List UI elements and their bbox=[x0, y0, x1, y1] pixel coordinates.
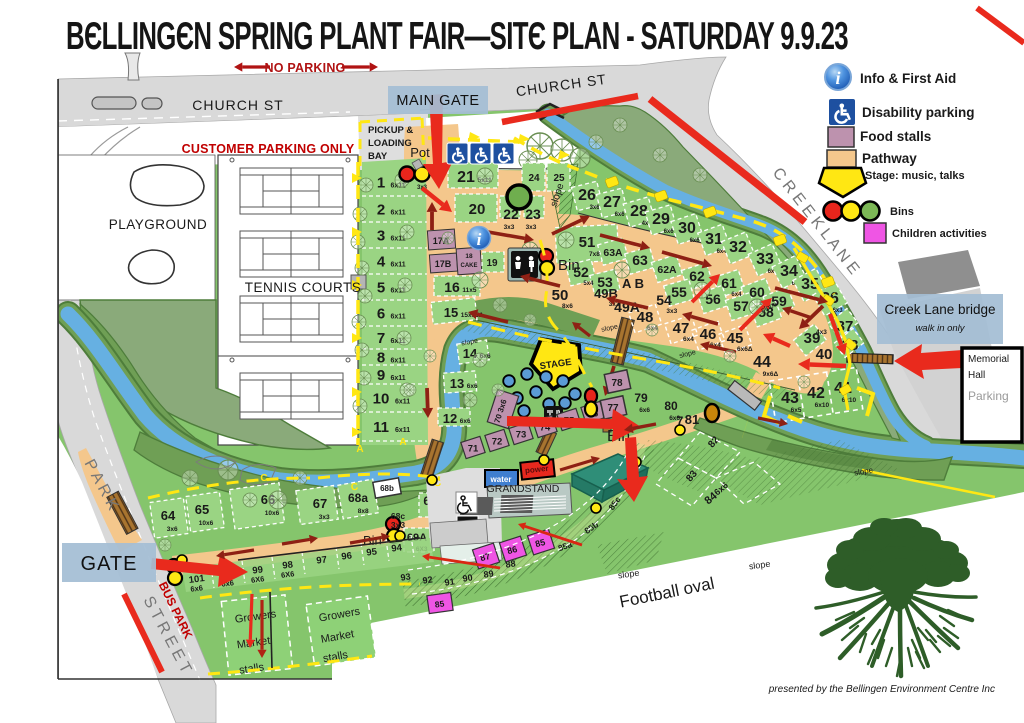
svg-text:32: 32 bbox=[729, 239, 747, 256]
svg-text:95: 95 bbox=[366, 546, 379, 558]
svg-text:48: 48 bbox=[637, 309, 654, 326]
svg-text:4: 4 bbox=[377, 254, 386, 271]
svg-text:6x6: 6x6 bbox=[467, 383, 478, 390]
svg-text:6x6: 6x6 bbox=[664, 229, 675, 235]
svg-text:Info & First Aid: Info & First Aid bbox=[860, 71, 956, 86]
svg-text:45: 45 bbox=[727, 330, 744, 347]
svg-text:55: 55 bbox=[671, 284, 687, 300]
svg-text:42: 42 bbox=[807, 385, 825, 402]
svg-text:A B: A B bbox=[622, 276, 644, 291]
svg-text:presented by the Bellingen Env: presented by the Bellingen Environment C… bbox=[768, 684, 995, 695]
svg-text:10x6: 10x6 bbox=[199, 520, 214, 527]
svg-text:11: 11 bbox=[373, 419, 389, 436]
svg-text:94: 94 bbox=[391, 542, 404, 554]
svg-text:BЄLLINGЄN SPRING PLANT FAIR—S: BЄLLINGЄN SPRING PLANT FAIR—SITЄ PLAN - … bbox=[66, 15, 848, 58]
svg-text:CAKE: CAKE bbox=[460, 263, 477, 269]
svg-text:30: 30 bbox=[678, 220, 696, 237]
svg-text:7x8: 7x8 bbox=[589, 251, 600, 258]
svg-text:27: 27 bbox=[603, 194, 621, 211]
svg-text:65: 65 bbox=[195, 502, 209, 517]
svg-text:GATE: GATE bbox=[81, 553, 138, 575]
svg-text:8: 8 bbox=[377, 350, 385, 367]
svg-text:81: 81 bbox=[685, 412, 699, 427]
svg-text:24: 24 bbox=[528, 173, 540, 184]
svg-text:8x6: 8x6 bbox=[562, 303, 573, 310]
svg-text:13: 13 bbox=[450, 376, 464, 391]
svg-text:6x11: 6x11 bbox=[395, 399, 410, 406]
svg-text:6x6: 6x6 bbox=[190, 583, 204, 593]
svg-text:21: 21 bbox=[457, 169, 475, 186]
svg-text:40: 40 bbox=[816, 346, 833, 363]
svg-text:A: A bbox=[399, 437, 406, 448]
svg-text:A: A bbox=[356, 444, 363, 455]
svg-text:90: 90 bbox=[462, 572, 473, 583]
svg-text:15: 15 bbox=[444, 305, 458, 320]
svg-text:31: 31 bbox=[705, 231, 723, 248]
svg-text:54: 54 bbox=[656, 292, 672, 308]
svg-text:6x11: 6x11 bbox=[391, 314, 406, 321]
svg-text:slope: slope bbox=[748, 559, 771, 572]
svg-text:6x10: 6x10 bbox=[815, 402, 830, 409]
svg-text:TENNIS COURTS: TENNIS COURTS bbox=[245, 280, 362, 295]
svg-text:Parking: Parking bbox=[968, 389, 1009, 403]
svg-text:6x10: 6x10 bbox=[842, 397, 857, 404]
svg-text:3: 3 bbox=[377, 228, 385, 245]
svg-text:6X6: 6X6 bbox=[281, 569, 295, 580]
svg-text:Stage: music, talks: Stage: music, talks bbox=[865, 170, 965, 182]
svg-text:68b: 68b bbox=[380, 484, 394, 493]
svg-text:11x5: 11x5 bbox=[462, 287, 476, 294]
svg-text:6x6: 6x6 bbox=[690, 238, 701, 244]
svg-text:6x11: 6x11 bbox=[391, 375, 406, 382]
svg-text:7: 7 bbox=[377, 330, 385, 347]
svg-text:6x11: 6x11 bbox=[395, 427, 410, 434]
svg-text:slope: slope bbox=[617, 568, 640, 581]
svg-text:PLAYGROUND: PLAYGROUND bbox=[109, 217, 208, 232]
svg-text:Bins: Bins bbox=[890, 206, 914, 218]
svg-text:Memorial: Memorial bbox=[968, 354, 1009, 365]
svg-text:5: 5 bbox=[377, 280, 385, 297]
svg-text:44: 44 bbox=[753, 354, 771, 371]
svg-text:6x6Δ: 6x6Δ bbox=[737, 346, 753, 353]
svg-text:8x8: 8x8 bbox=[358, 508, 369, 515]
svg-text:6x11: 6x11 bbox=[391, 358, 406, 365]
svg-text:3x3: 3x3 bbox=[504, 224, 515, 231]
svg-text:20: 20 bbox=[469, 201, 486, 218]
svg-text:3x3: 3x3 bbox=[319, 514, 330, 521]
svg-text:50: 50 bbox=[552, 287, 569, 304]
svg-text:80: 80 bbox=[664, 399, 678, 413]
svg-text:72: 72 bbox=[492, 437, 503, 448]
svg-text:60: 60 bbox=[749, 284, 765, 300]
svg-text:MAIN GATE: MAIN GATE bbox=[396, 93, 479, 109]
svg-text:71: 71 bbox=[468, 444, 479, 455]
svg-text:C: C bbox=[260, 473, 267, 484]
svg-text:BAY: BAY bbox=[368, 151, 388, 162]
svg-text:9: 9 bbox=[377, 367, 385, 384]
svg-text:12: 12 bbox=[443, 411, 457, 426]
svg-text:63: 63 bbox=[632, 252, 648, 268]
svg-text:Football oval: Football oval bbox=[618, 574, 716, 612]
svg-text:79: 79 bbox=[634, 391, 648, 405]
svg-text:CHURCH ST: CHURCH ST bbox=[192, 97, 283, 113]
svg-text:3x6: 3x6 bbox=[167, 526, 178, 533]
svg-text:PICKUP &: PICKUP & bbox=[368, 125, 413, 136]
svg-text:67: 67 bbox=[313, 496, 327, 511]
svg-text:3x3: 3x3 bbox=[391, 520, 405, 530]
svg-text:Food stalls: Food stalls bbox=[860, 129, 931, 144]
svg-text:73: 73 bbox=[516, 430, 527, 441]
svg-text:6x6: 6x6 bbox=[639, 407, 650, 414]
svg-text:Disability parking: Disability parking bbox=[862, 105, 975, 120]
svg-text:78: 78 bbox=[611, 378, 623, 389]
svg-text:NO PARKING: NO PARKING bbox=[265, 61, 346, 75]
svg-text:3x3: 3x3 bbox=[666, 308, 677, 315]
svg-text:3x3: 3x3 bbox=[526, 224, 537, 231]
svg-text:2: 2 bbox=[377, 202, 385, 219]
svg-text:10: 10 bbox=[373, 391, 390, 408]
svg-text:92: 92 bbox=[422, 574, 433, 585]
svg-text:62A: 62A bbox=[657, 264, 677, 276]
svg-text:Creek Lane bridge: Creek Lane bridge bbox=[884, 302, 995, 317]
svg-text:33: 33 bbox=[756, 251, 774, 268]
svg-text:63A: 63A bbox=[603, 247, 623, 259]
svg-text:47: 47 bbox=[673, 320, 690, 337]
svg-text:26: 26 bbox=[578, 187, 596, 204]
svg-text:6: 6 bbox=[377, 306, 385, 323]
svg-text:46: 46 bbox=[700, 326, 717, 343]
svg-text:43: 43 bbox=[781, 390, 799, 407]
svg-text:6x11: 6x11 bbox=[391, 262, 406, 269]
svg-text:10x6: 10x6 bbox=[265, 510, 280, 517]
svg-text:3x6: 3x6 bbox=[590, 205, 601, 211]
svg-text:Bin: Bin bbox=[558, 257, 580, 274]
svg-text:Hall: Hall bbox=[968, 370, 985, 381]
svg-text:85: 85 bbox=[434, 598, 445, 609]
svg-text:93: 93 bbox=[400, 571, 411, 582]
svg-text:57: 57 bbox=[733, 298, 749, 314]
svg-text:walk in only: walk in only bbox=[915, 323, 965, 334]
svg-text:LOADING: LOADING bbox=[368, 138, 412, 149]
svg-text:6x6: 6x6 bbox=[615, 212, 626, 218]
svg-text:6x6: 6x6 bbox=[460, 418, 471, 425]
svg-text:91: 91 bbox=[444, 576, 455, 587]
svg-text:GRANDSTAND: GRANDSTAND bbox=[487, 483, 560, 495]
svg-text:4x3: 4x3 bbox=[816, 329, 827, 336]
svg-text:29: 29 bbox=[652, 211, 670, 228]
svg-text:1: 1 bbox=[377, 175, 385, 192]
svg-text:16: 16 bbox=[444, 279, 460, 295]
svg-text:97: 97 bbox=[316, 554, 328, 566]
svg-text:5x4: 5x4 bbox=[583, 281, 594, 287]
svg-text:61: 61 bbox=[721, 275, 737, 291]
svg-text:Pot: Pot bbox=[410, 145, 430, 160]
svg-text:34: 34 bbox=[780, 263, 798, 280]
svg-text:51: 51 bbox=[579, 234, 596, 251]
svg-text:i: i bbox=[835, 68, 840, 88]
svg-text:9x6Δ: 9x6Δ bbox=[763, 371, 779, 378]
svg-text:18: 18 bbox=[465, 253, 473, 260]
svg-text:Children activities: Children activities bbox=[892, 228, 987, 240]
svg-text:C: C bbox=[350, 482, 359, 494]
svg-text:i: i bbox=[477, 230, 482, 249]
svg-text:17B: 17B bbox=[435, 259, 452, 269]
svg-text:64: 64 bbox=[161, 508, 176, 523]
svg-text:6x11: 6x11 bbox=[391, 210, 406, 217]
svg-text:19: 19 bbox=[486, 258, 498, 269]
svg-text:6X6: 6X6 bbox=[251, 574, 265, 585]
svg-text:6x4: 6x4 bbox=[683, 336, 694, 343]
svg-text:23: 23 bbox=[525, 206, 541, 222]
svg-text:6x5: 6x5 bbox=[791, 407, 802, 414]
svg-text:96: 96 bbox=[341, 550, 353, 562]
svg-text:CUSTOMER PARKING ONLY: CUSTOMER PARKING ONLY bbox=[182, 142, 355, 156]
svg-text:Pathway: Pathway bbox=[862, 151, 917, 166]
